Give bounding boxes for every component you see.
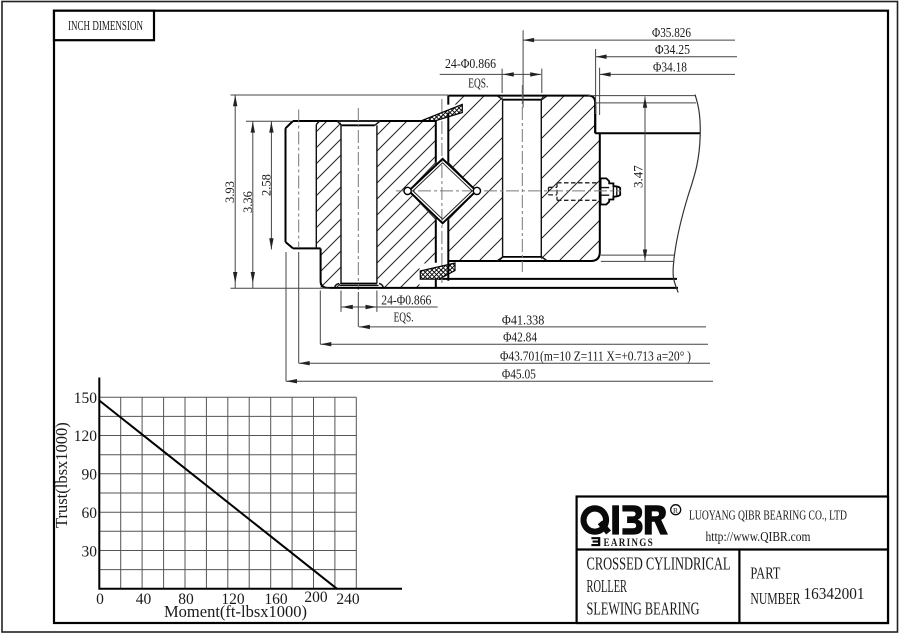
svg-text:LUOYANG QIBR BEARING CO., LTD: LUOYANG QIBR BEARING CO., LTD xyxy=(689,509,847,524)
svg-text:120: 120 xyxy=(74,428,98,445)
svg-text:NUMBER: NUMBER xyxy=(750,589,800,608)
svg-text:EQS.: EQS. xyxy=(394,309,414,324)
svg-text:240: 240 xyxy=(336,591,360,608)
svg-text:SLEWING BEARING: SLEWING BEARING xyxy=(587,599,700,619)
svg-text:Φ41.338: Φ41.338 xyxy=(502,312,545,327)
svg-text:EARINGS: EARINGS xyxy=(604,537,655,549)
svg-text:0: 0 xyxy=(96,591,104,608)
svg-text:200: 200 xyxy=(304,589,328,606)
svg-text:Φ34.18: Φ34.18 xyxy=(653,60,687,75)
svg-text:CROSSED CYLINDRICAL: CROSSED CYLINDRICAL xyxy=(587,554,731,574)
svg-text:3.47: 3.47 xyxy=(631,165,646,188)
svg-text:30: 30 xyxy=(82,544,98,561)
svg-text:Φ45.05: Φ45.05 xyxy=(502,367,536,382)
svg-text:INCH DIMENSION: INCH DIMENSION xyxy=(68,18,143,33)
svg-text:ROLLER: ROLLER xyxy=(587,576,628,596)
svg-text:R: R xyxy=(673,506,678,515)
svg-text:EQS.: EQS. xyxy=(468,76,488,91)
svg-text:24-Φ0.866: 24-Φ0.866 xyxy=(445,56,496,71)
svg-text:40: 40 xyxy=(136,591,152,608)
svg-text:Φ43.701(m=10 Z=111 X=+0.713 a=: Φ43.701(m=10 Z=111 X=+0.713 a=20° ) xyxy=(500,349,691,364)
svg-text:90: 90 xyxy=(82,467,98,484)
svg-text:http://www.QIBR.com: http://www.QIBR.com xyxy=(706,530,811,545)
svg-text:3.93: 3.93 xyxy=(223,181,237,203)
svg-text:Φ42.84: Φ42.84 xyxy=(503,330,537,345)
svg-text:24-Φ0.866: 24-Φ0.866 xyxy=(381,292,431,307)
svg-text:Trust(lbsx1000): Trust(lbsx1000) xyxy=(52,422,71,528)
svg-text:Moment(ft-lbsx1000): Moment(ft-lbsx1000) xyxy=(164,602,307,621)
svg-text:16342001: 16342001 xyxy=(804,584,865,603)
svg-text:Φ34.25: Φ34.25 xyxy=(655,42,690,57)
svg-text:150: 150 xyxy=(74,390,98,407)
svg-text:Φ35.826: Φ35.826 xyxy=(652,25,691,40)
svg-text:2.58: 2.58 xyxy=(259,174,273,196)
svg-text:PART: PART xyxy=(750,564,780,583)
svg-text:60: 60 xyxy=(82,505,98,522)
svg-text:3.36: 3.36 xyxy=(241,191,255,213)
